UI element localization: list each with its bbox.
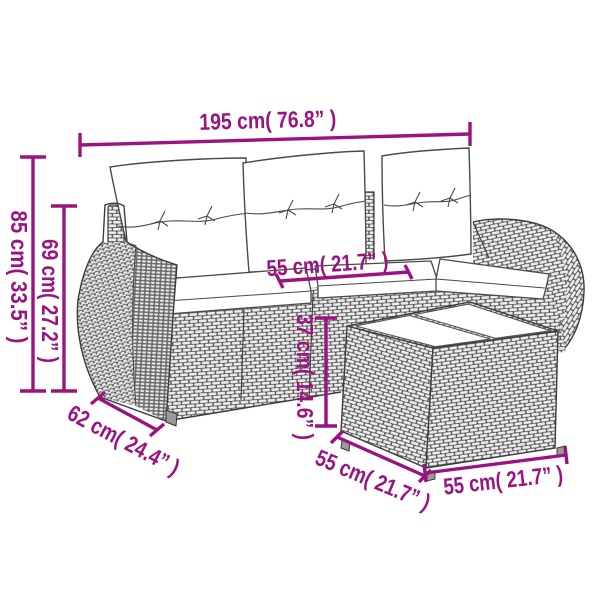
svg-text:85 cm( 33.5” ): 85 cm( 33.5” ) [6,211,32,344]
svg-text:195 cm( 76.8” ): 195 cm( 76.8” ) [199,105,337,135]
svg-text:55 cm( 21.7” ): 55 cm( 21.7” ) [442,461,564,500]
svg-text:69 cm( 27.2” ): 69 cm( 27.2” ) [37,239,63,363]
svg-text:37 cm( 14.6” ): 37 cm( 14.6” ) [292,314,318,440]
